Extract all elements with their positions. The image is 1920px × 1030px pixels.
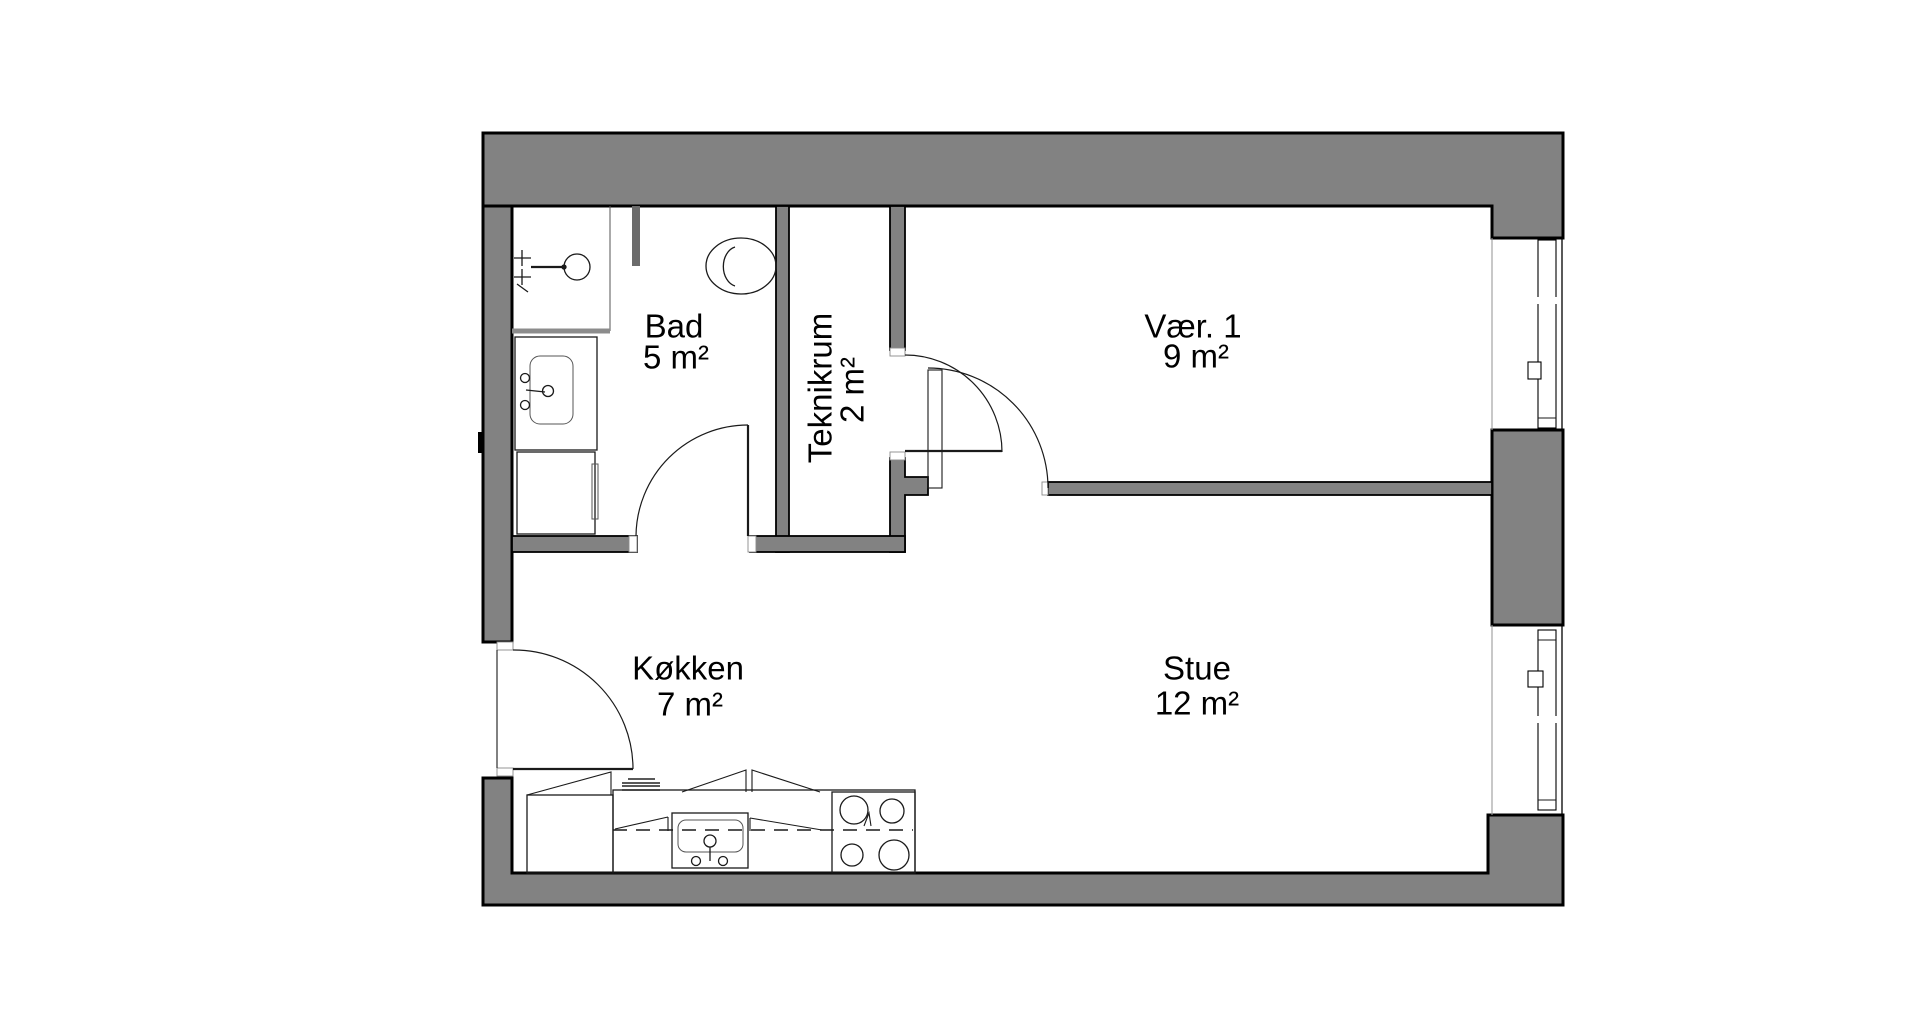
vaer1-door-jamb-east bbox=[1042, 482, 1048, 495]
vaer1-area: 9 m² bbox=[1163, 338, 1229, 375]
washing-machine-icon bbox=[517, 452, 598, 534]
vaer1-door-leaf bbox=[928, 370, 942, 488]
teknikrum-door-arc bbox=[905, 355, 1002, 452]
washbasin-icon bbox=[515, 337, 597, 450]
radiator-grille-icon bbox=[622, 779, 660, 790]
entrance-door-jamb-top bbox=[497, 642, 513, 650]
bad-south-wall-west bbox=[512, 536, 637, 552]
left-wall-upper bbox=[483, 206, 512, 642]
bathroom-door-arc bbox=[636, 425, 748, 536]
window-vaer1-frame bbox=[1538, 240, 1556, 428]
teknikrum-door-jamb-top bbox=[890, 348, 905, 356]
window-stue-frame-break bbox=[1537, 716, 1557, 723]
entrance-door-jamb-bottom bbox=[497, 768, 513, 776]
kitchen-sink-icon bbox=[672, 813, 748, 868]
floor-plan-drawing: Bad 5 m² Teknikrum 2 m² Vær. 1 9 m² Køkk… bbox=[0, 0, 1920, 1030]
window-vaer1-frame-break bbox=[1537, 297, 1557, 304]
vaer1-stue-divider-wall bbox=[1048, 482, 1492, 495]
stue-area: 12 m² bbox=[1155, 685, 1239, 722]
outside-wall-tick bbox=[478, 432, 484, 453]
kitchen-fixtures bbox=[527, 770, 915, 873]
counter-diagonal-marks bbox=[615, 817, 822, 831]
cabinet-flap-left bbox=[527, 772, 611, 795]
bathroom-door-jamb-east bbox=[748, 536, 756, 552]
stue-label: Stue bbox=[1163, 650, 1231, 687]
top-wall bbox=[483, 133, 1563, 238]
cabinet-flap-peaks bbox=[682, 770, 820, 792]
koekken-label: Køkken bbox=[632, 650, 744, 687]
stove-icon bbox=[832, 792, 915, 873]
entrance-door-arc bbox=[513, 650, 633, 769]
bad-teknikrum-south-wall-east bbox=[750, 536, 905, 552]
shower-screen-stub bbox=[632, 206, 640, 266]
bathroom-door-jamb-west bbox=[629, 536, 637, 552]
shower-icon bbox=[514, 250, 590, 292]
kitchen-base-cabinet bbox=[527, 795, 613, 873]
teknikrum-door-jamb-bottom bbox=[890, 452, 905, 460]
teknikrum-west-wall bbox=[776, 206, 789, 552]
doors bbox=[497, 355, 1048, 769]
koekken-area: 7 m² bbox=[657, 686, 723, 723]
bad-area: 5 m² bbox=[643, 339, 709, 376]
partition-walls bbox=[512, 206, 1492, 552]
toilet-icon bbox=[706, 238, 776, 294]
right-wall-mid-pier bbox=[1492, 430, 1563, 625]
door-jambs bbox=[497, 348, 1048, 776]
teknikrum-east-wall-upper bbox=[890, 206, 905, 350]
bottom-wall-and-left-lower bbox=[483, 778, 1563, 905]
teknikrum-area: 2 m² bbox=[834, 357, 871, 423]
window-vaer1-handle bbox=[1528, 362, 1541, 379]
floor-plan-page: Bad 5 m² Teknikrum 2 m² Vær. 1 9 m² Køkk… bbox=[0, 0, 1920, 1030]
window-stue-handle bbox=[1528, 671, 1543, 687]
kitchen-counter bbox=[613, 790, 915, 873]
vaer1-door-arc bbox=[928, 368, 1048, 488]
